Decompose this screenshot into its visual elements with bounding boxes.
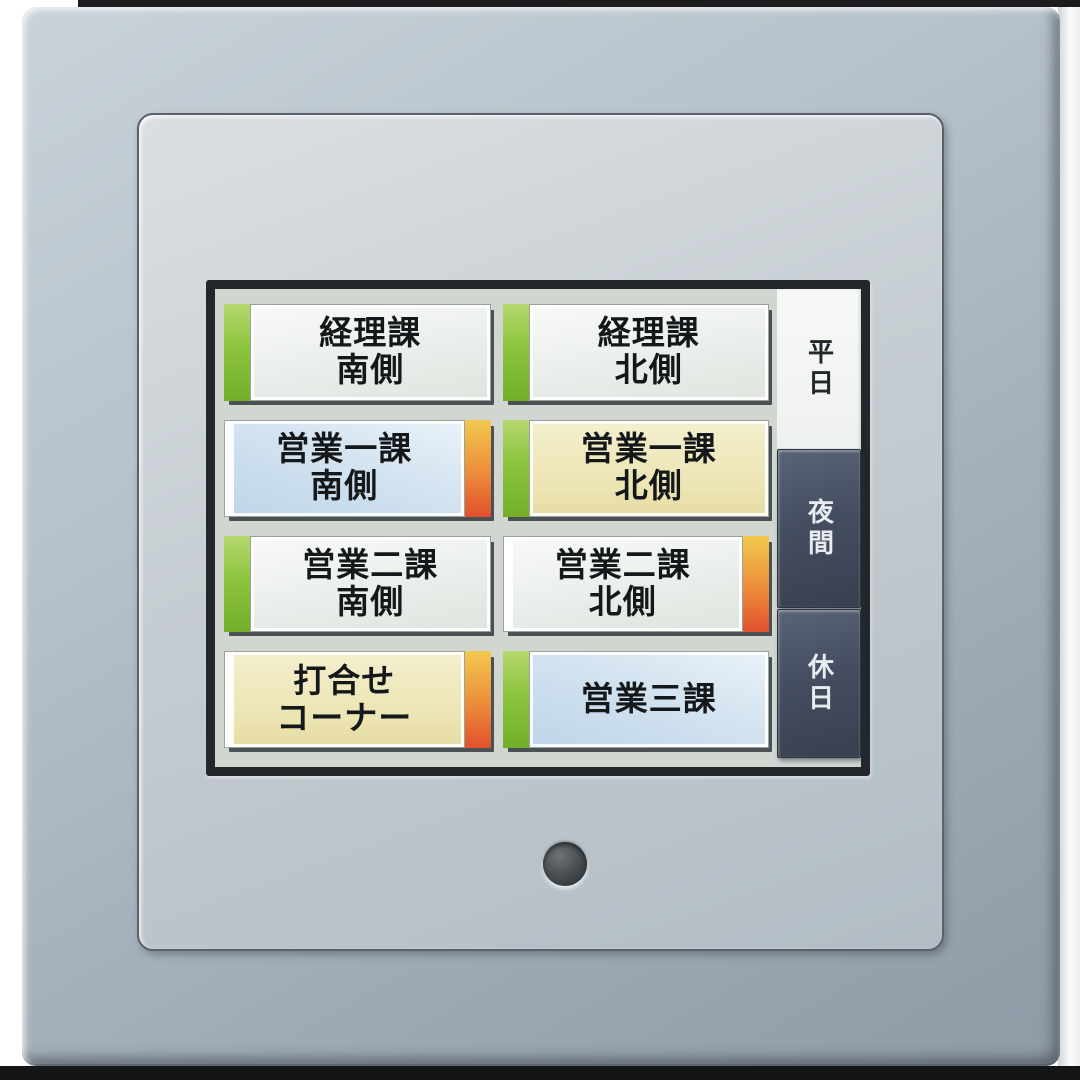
button-label-line2: 北側	[615, 468, 683, 505]
button-label-line1: 営業二課	[555, 547, 691, 584]
photo-shadow-bottom	[0, 1066, 1080, 1080]
status-stripe-green	[503, 651, 529, 748]
panel-frame: 経理課 南側 経理課 北側	[22, 7, 1060, 1066]
tab-weekday-label: 平日	[801, 338, 838, 400]
panel-faceplate: 経理課 南側 経理課 北側	[137, 113, 944, 951]
button-label-line1: 営業一課	[581, 431, 717, 468]
scene-button-keirika-minami[interactable]: 経理課 南側	[224, 304, 491, 401]
mode-tab-rail: 平日 夜間 休日	[777, 289, 861, 767]
service-push-button[interactable]	[543, 842, 587, 886]
scene-button-eigyo-3ka[interactable]: 営業三課	[503, 651, 770, 748]
scene-button-eigyo-2ka-minami[interactable]: 営業二課 南側	[224, 536, 491, 633]
tab-night[interactable]: 夜間	[777, 449, 861, 608]
scene-button-label: 経理課 南側	[250, 304, 491, 401]
scene-button-label: 打合せ コーナー	[224, 651, 465, 748]
scene-button-eigyo-1ka-minami[interactable]: 営業一課 南側	[224, 420, 491, 517]
photo-stage: 経理課 南側 経理課 北側	[0, 0, 1080, 1080]
button-label-line2: 北側	[589, 584, 657, 621]
button-label-line1: 経理課	[319, 315, 421, 352]
button-label-line2: 南側	[336, 584, 404, 621]
scene-button-label: 経理課 北側	[529, 304, 770, 401]
scene-button-label: 営業一課 北側	[529, 420, 770, 517]
scene-button-keirika-kita[interactable]: 経理課 北側	[503, 304, 770, 401]
status-stripe-green	[503, 420, 529, 517]
tab-holiday[interactable]: 休日	[777, 609, 861, 758]
button-label-line2: コーナー	[276, 700, 412, 737]
status-stripe-green	[503, 304, 529, 401]
tab-night-label: 夜間	[801, 498, 838, 560]
status-stripe-green	[224, 536, 250, 633]
status-stripe-orange	[743, 536, 769, 633]
scene-button-label: 営業三課	[529, 651, 770, 748]
status-stripe-green	[224, 304, 250, 401]
button-label-line2: 南側	[336, 352, 404, 389]
button-label-line1: 営業一課	[276, 431, 412, 468]
scene-button-uchiawase-corner[interactable]: 打合せ コーナー	[224, 651, 491, 748]
scene-button-label: 営業二課 南側	[250, 536, 491, 633]
tab-weekday[interactable]: 平日	[777, 289, 861, 449]
button-label-line2: 南側	[310, 468, 378, 505]
scene-button-eigyo-2ka-kita[interactable]: 営業二課 北側	[503, 536, 770, 633]
scene-button-eigyo-1ka-kita[interactable]: 営業一課 北側	[503, 420, 770, 517]
tab-holiday-label: 休日	[801, 653, 838, 715]
scene-button-grid: 経理課 南側 経理課 北側	[215, 289, 777, 767]
touch-screen: 経理課 南側 経理課 北側	[206, 280, 870, 776]
scene-button-label: 営業一課 南側	[224, 420, 465, 517]
status-stripe-orange	[465, 651, 491, 748]
screen-content: 経理課 南側 経理課 北側	[215, 289, 861, 767]
button-label-line1: 営業二課	[302, 547, 438, 584]
photo-shadow-right	[1058, 7, 1080, 1066]
button-label-line1: 経理課	[598, 315, 700, 352]
scene-button-label: 営業二課 北側	[503, 536, 744, 633]
button-label-line1: 営業三課	[581, 681, 717, 718]
button-label-line1: 打合せ	[293, 663, 395, 700]
status-stripe-orange	[465, 420, 491, 517]
photo-shadow-top	[78, 0, 1080, 7]
button-label-line2: 北側	[615, 352, 683, 389]
